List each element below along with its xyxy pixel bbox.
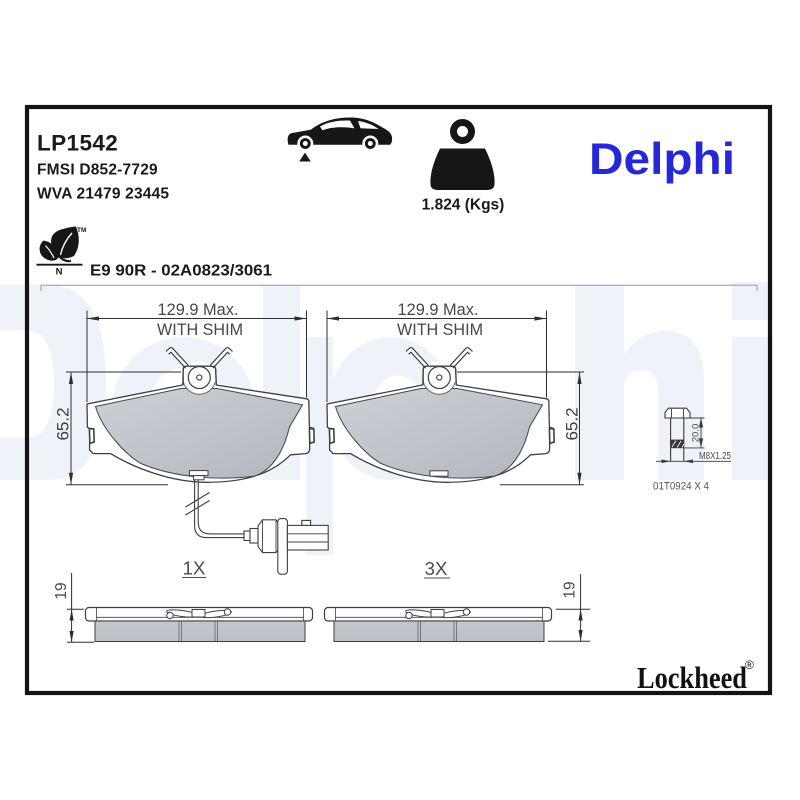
svg-text:FMSI D852-7729: FMSI D852-7729 bbox=[37, 162, 158, 179]
svg-text:3X: 3X bbox=[425, 558, 448, 579]
svg-text:01T0924 X 4: 01T0924 X 4 bbox=[653, 481, 709, 493]
svg-text:WITH SHIM: WITH SHIM bbox=[157, 320, 243, 339]
svg-text:N: N bbox=[56, 267, 63, 278]
svg-text:WITH SHIM: WITH SHIM bbox=[397, 320, 483, 339]
svg-text:1.824 (Kgs): 1.824 (Kgs) bbox=[422, 197, 505, 214]
svg-text:129.9 Max.: 129.9 Max. bbox=[398, 300, 479, 319]
svg-text:65.2: 65.2 bbox=[53, 407, 72, 440]
svg-text:E9 90R - 02A0823/3061: E9 90R - 02A0823/3061 bbox=[90, 263, 272, 280]
svg-text:19: 19 bbox=[53, 582, 70, 599]
svg-text:20.0: 20.0 bbox=[690, 424, 701, 443]
svg-text:65.2: 65.2 bbox=[562, 407, 581, 440]
svg-text:1X: 1X bbox=[183, 558, 206, 579]
svg-text:M8X1.25: M8X1.25 bbox=[699, 451, 731, 462]
svg-text:TM: TM bbox=[77, 227, 86, 234]
svg-text:19: 19 bbox=[561, 581, 578, 598]
svg-text:Lockheed: Lockheed bbox=[637, 660, 747, 695]
svg-text:129.9 Max.: 129.9 Max. bbox=[158, 300, 239, 319]
svg-text:WVA 21479 23445: WVA 21479 23445 bbox=[37, 186, 169, 203]
svg-text:®: ® bbox=[745, 658, 754, 672]
svg-text:LP1542: LP1542 bbox=[37, 131, 118, 156]
svg-text:Delphi: Delphi bbox=[589, 135, 735, 184]
